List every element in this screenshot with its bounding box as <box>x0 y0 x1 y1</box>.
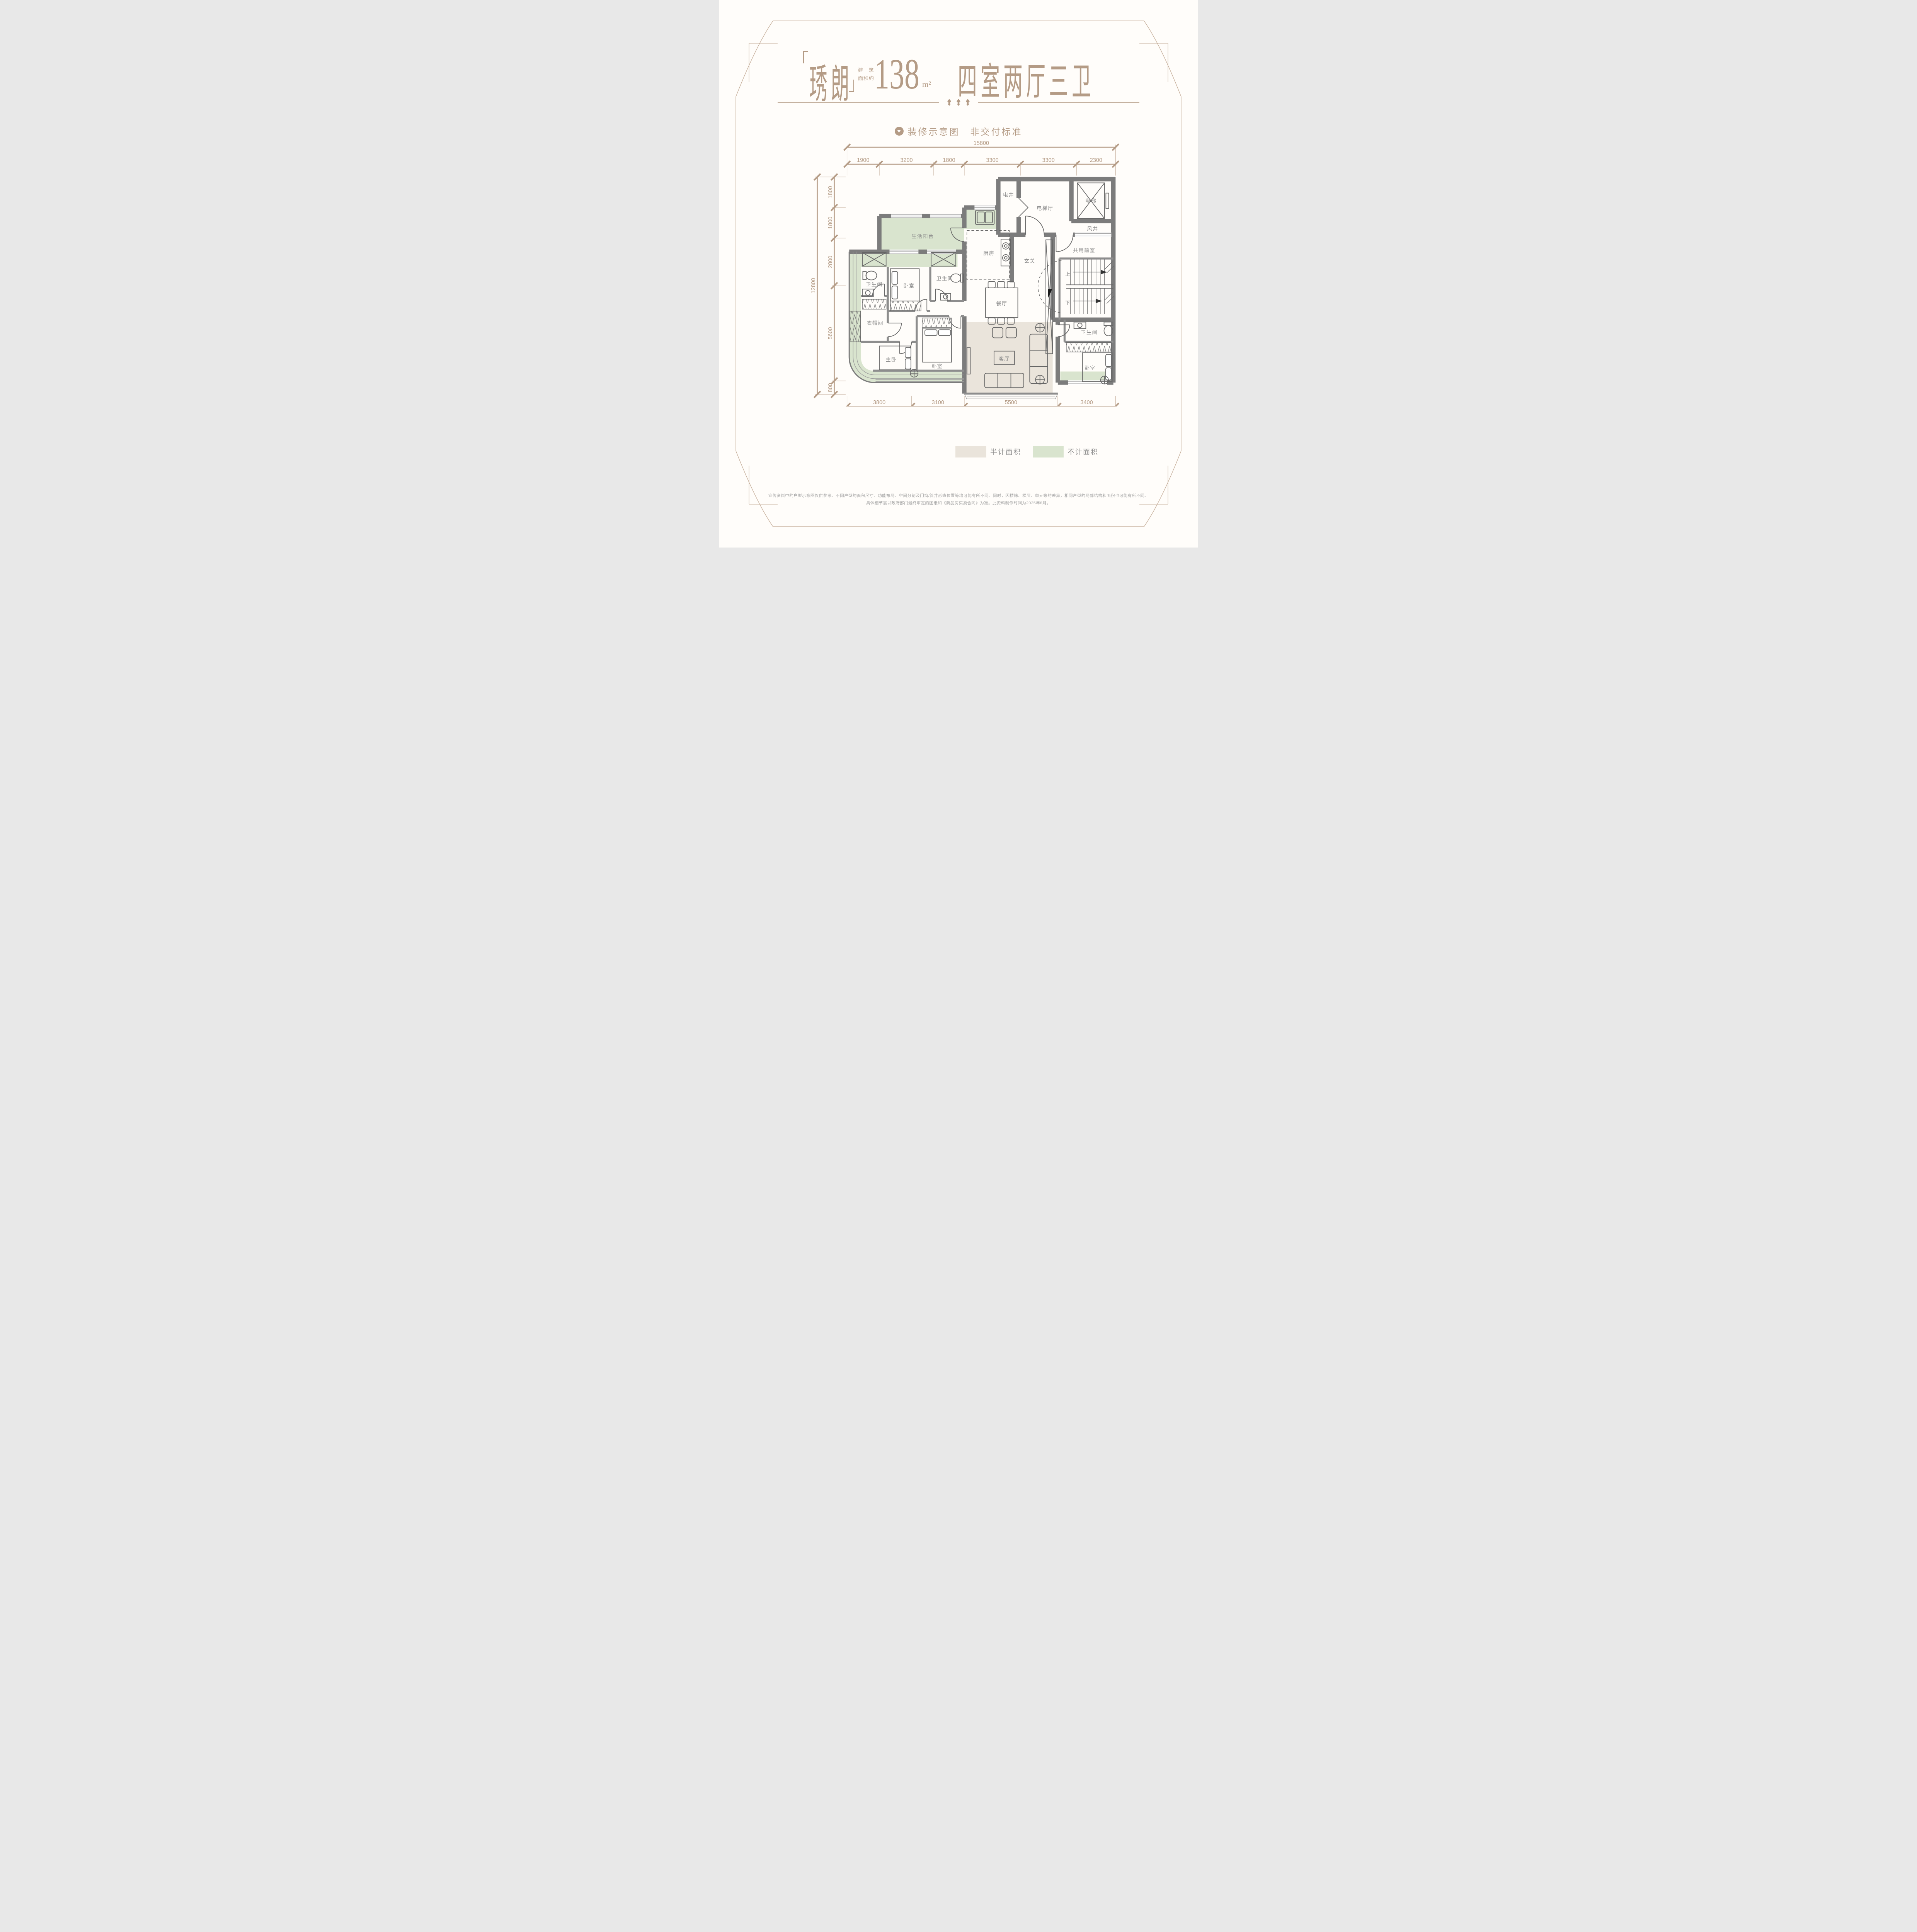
unit-type: 四室两厅三卫 <box>958 52 1095 106</box>
legend-item-excluded-area: 不计面积 <box>1033 446 1098 457</box>
dim-left-0: 1800 <box>827 186 834 198</box>
bracket-left-icon <box>803 51 808 63</box>
excluded-area-swatch <box>1033 446 1064 457</box>
room-label-bathroom-mid: 卫生间 <box>936 276 953 281</box>
room-label-bedroom-top: 卧室 <box>904 282 915 289</box>
room-label-bathroom-left: 卫生间 <box>866 282 883 287</box>
divider <box>778 99 1139 106</box>
room-label-bedroom-right: 卧室 <box>1084 365 1096 371</box>
dim-top-2: 1800 <box>943 157 955 163</box>
diamond-ornament-icon <box>945 99 972 106</box>
room-label-service-balcony: 生活阳台 <box>911 233 934 239</box>
room-label-master-bedroom: 主卧 <box>885 357 897 362</box>
area-label: 建 筑 面积约 <box>858 66 874 83</box>
stove-icon <box>1001 239 1011 266</box>
half-area-label: 半计面积 <box>990 447 1021 457</box>
divider-line-left <box>778 102 939 103</box>
dim-top-total: 15800 <box>974 140 989 146</box>
disclaimer-line1: 宣传资料中的户型示意图仅供参考。不同户型的面积尺寸、功能布局、空间分割及门窗/管… <box>765 492 1152 500</box>
room-label-shared-front-room: 共用前室 <box>1073 247 1095 253</box>
stairs <box>1038 259 1114 314</box>
room-label-bedroom-mid: 卧室 <box>931 363 943 369</box>
dim-bottom-0: 3800 <box>873 400 885 406</box>
dim-top-0: 1900 <box>857 157 869 163</box>
divider-line-right <box>978 102 1139 103</box>
dim-left-2: 2800 <box>827 256 834 268</box>
dim-bottom-3: 3400 <box>1081 400 1093 406</box>
disclaimer-line2: 具体细节需以政府部门最终审定的图纸和《商品房买卖合同》为准。此资料制作时间为20… <box>765 500 1152 507</box>
dim-left-1: 1800 <box>827 217 834 229</box>
louver-door-icon <box>1019 198 1028 217</box>
bracket-right-icon <box>849 80 854 92</box>
dim-left-3: 5600 <box>827 327 834 339</box>
dim-bottom-2: 5500 <box>1005 400 1017 406</box>
note-text: 装修示意图 非交付标准 <box>908 124 1023 138</box>
room-label-cloakroom: 衣帽间 <box>867 320 884 326</box>
room-label-foyer: 玄关 <box>1024 258 1035 264</box>
room-label-elevator: 电梯 <box>1085 198 1096 204</box>
stairs-up-label: 上 <box>1065 271 1071 277</box>
bed-mid <box>923 328 952 362</box>
room-label-kitchen: 厨房 <box>983 250 994 256</box>
disclaimer: 宣传资料中的户型示意图仅供参考。不同户型的面积尺寸、功能布局、空间分割及门窗/管… <box>765 492 1152 507</box>
dim-top-4: 3300 <box>1042 157 1055 163</box>
area-label-line1: 建 筑 <box>858 66 874 75</box>
brand-name: 琇朗 <box>809 51 851 92</box>
dim-top-1: 3200 <box>900 157 913 163</box>
dim-left-4: 800 <box>827 383 834 392</box>
note-row: 装修示意图 非交付标准 <box>719 124 1198 138</box>
room-label-elec-shaft: 电井 <box>1003 192 1014 197</box>
room-label-dining: 餐厅 <box>996 301 1007 306</box>
legend-item-half-area: 半计面积 <box>955 446 1021 457</box>
area-value: 138 <box>874 49 919 99</box>
room-label-bathroom-right: 卫生间 <box>1081 330 1098 335</box>
cloakroom-door <box>888 323 901 337</box>
dim-bottom-1: 3100 <box>932 400 944 406</box>
header: 琇朗 建 筑 面积约 138 m² 四室两厅三卫 <box>809 49 1103 98</box>
dim-top-5: 2300 <box>1090 157 1102 163</box>
floor-plan-svg: 电井 电梯厅 电梯 风井 共用前室 玄关 厨房 生活阳台 餐厅 客厅 卫生间 卫… <box>798 136 1122 406</box>
stairs-down-label: 下 <box>1065 300 1071 306</box>
floor-plan: 电井 电梯厅 电梯 风井 共用前室 玄关 厨房 生活阳台 餐厅 客厅 卫生间 卫… <box>798 136 1122 406</box>
dim-top-3: 3300 <box>986 157 998 163</box>
room-label-elevator-hall: 电梯厅 <box>1037 206 1054 211</box>
room-label-air-shaft: 风井 <box>1087 226 1098 231</box>
legend: 半计面积 不计面积 <box>955 446 1098 457</box>
corridor-door <box>1056 235 1073 252</box>
area-label-line2: 面积约 <box>858 75 874 83</box>
down-triangle-icon <box>895 127 904 136</box>
entry-door <box>1025 216 1044 235</box>
excluded-area-label: 不计面积 <box>1067 447 1098 457</box>
flyer-page: 琇朗 建 筑 面积约 138 m² 四室两厅三卫 装修示意图 非交付标准 <box>719 0 1198 548</box>
area-unit: m² <box>922 80 931 89</box>
half-area-swatch <box>955 446 986 457</box>
dim-left-total: 12800 <box>810 278 817 293</box>
room-label-living: 客厅 <box>999 355 1010 362</box>
